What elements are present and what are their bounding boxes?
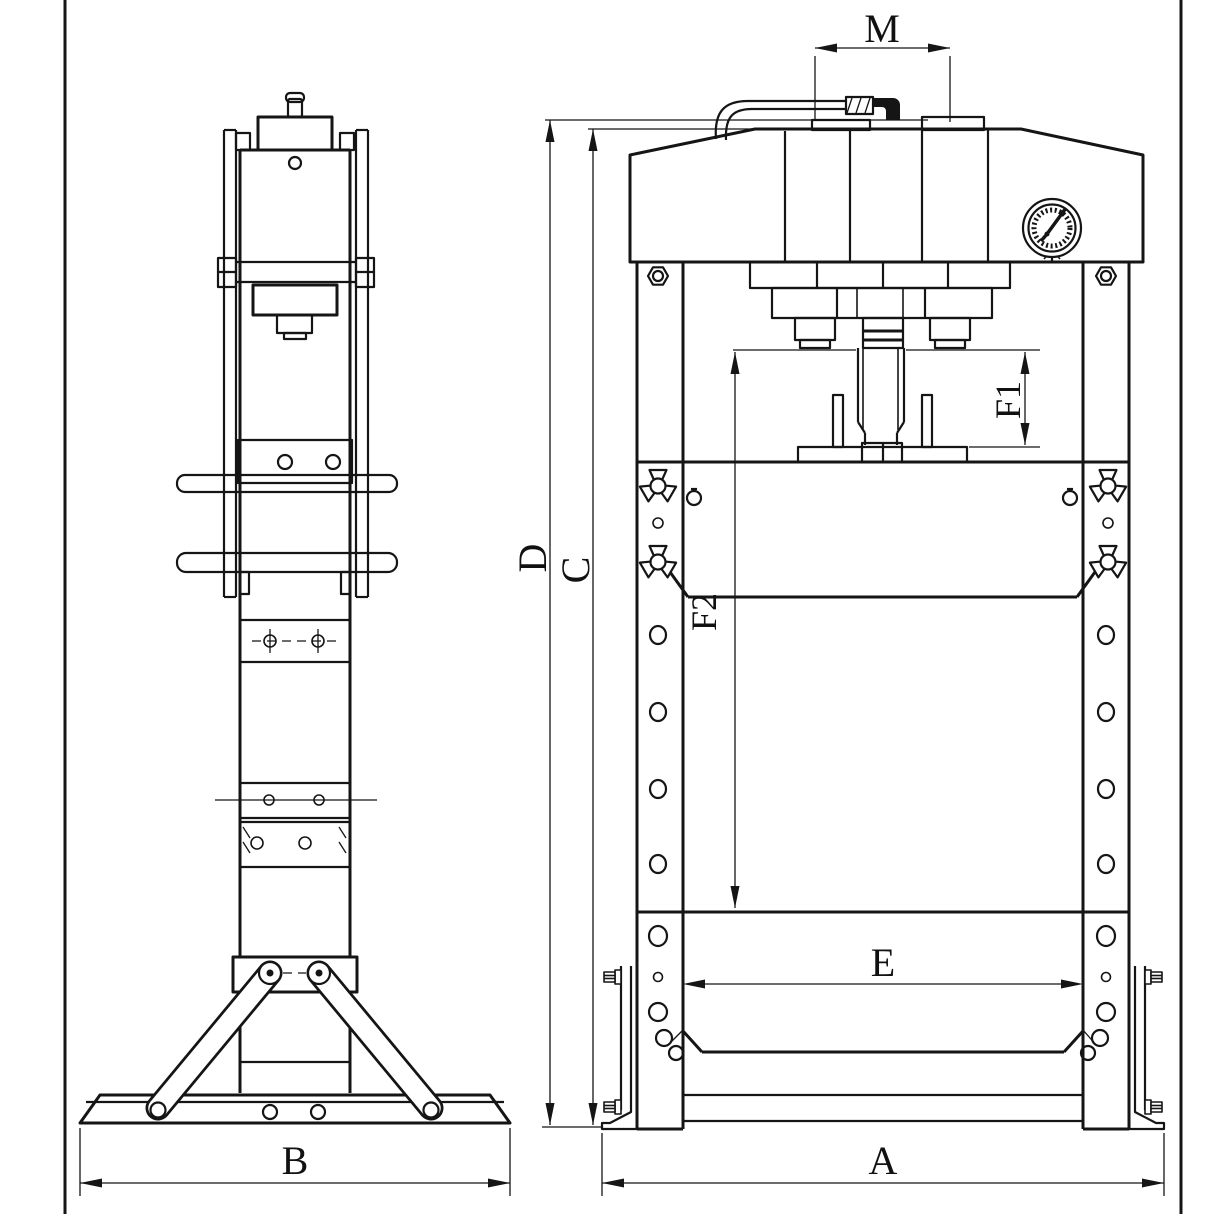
side-base-plate [80,1095,510,1123]
hydraulic-hose-icon [716,97,900,140]
dimension-F2: F2 [684,352,740,908]
frame-column-right [1083,262,1129,1129]
dimension-B: B [80,1128,510,1196]
front-view: M D C F1 [510,6,1164,1196]
dimension-C: C [542,129,815,1127]
dimension-label-b: B [282,1138,309,1183]
spring-anchor-icon [640,470,676,501]
side-handle-bars [177,475,397,594]
dimension-label-a: A [869,1138,898,1183]
column-bolt-icon [1096,267,1116,284]
side-pump-cylinder [258,93,332,169]
spring-anchor-icon [640,546,676,577]
ram-assembly [750,262,1010,462]
dimension-label-e: E [871,940,895,985]
pressure-gauge-icon [1023,199,1081,262]
dimension-E: E [683,940,1083,989]
dimension-label-d: D [510,544,555,573]
side-guide-rails [224,130,368,597]
column-bolt-icon [648,267,668,284]
dimension-A: A [602,1133,1164,1196]
side-bolted-plate [240,822,350,867]
spring-anchor-icon [1090,470,1126,501]
foot-bracket-left [602,966,637,1129]
side-bracket-box [238,440,352,483]
side-column [240,150,350,1093]
side-view: B [80,93,510,1196]
dimension-label-f1: F1 [988,381,1028,419]
drawing-page: B [0,0,1214,1214]
work-table [637,462,1129,597]
dimension-label-f2: F2 [684,593,724,631]
dimension-label-m: M [864,6,900,51]
technical-drawing: B [0,0,1214,1214]
side-base-holes [263,1105,325,1119]
dimension-label-c: C [553,557,598,584]
side-bolt-band-upper [240,620,350,662]
spring-anchor-icon [1090,546,1126,577]
foot-bracket-right [1129,966,1164,1129]
column-pin-holes [649,626,1115,1060]
frame-column-left [637,262,683,1129]
dimension-F1: F1 [733,350,1040,447]
side-lower-cylinder [253,285,337,339]
